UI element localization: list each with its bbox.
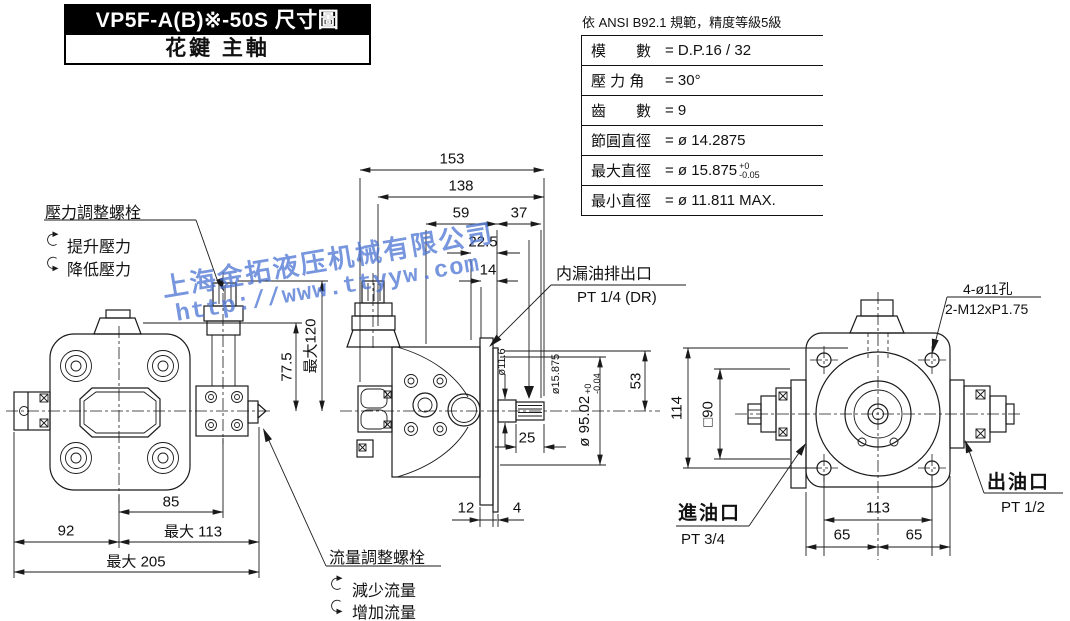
spec-row-pressure-angle: 壓 力 角 = 30°	[582, 66, 823, 96]
spec-row-module: 模 數 = D.P.16 / 32	[582, 36, 823, 66]
dim-25: 25	[519, 430, 536, 447]
clockwise-arrow-icon	[328, 575, 346, 593]
dim-12: 12	[458, 500, 475, 517]
increase-flow-label: 增加流量	[352, 599, 416, 621]
outlet-port-size: PT 1/2	[1001, 499, 1045, 516]
dim-153: 153	[439, 151, 464, 168]
inlet-port-label: 進油口	[678, 498, 741, 525]
counterclockwise-arrow-icon	[328, 597, 346, 615]
counterclockwise-arrow-icon	[44, 254, 62, 272]
pressure-adjust-label: 壓力調整螺栓	[45, 199, 141, 223]
dim-14: 14	[480, 262, 497, 279]
dim-dia11-6: ø11.6	[496, 348, 508, 375]
dim-sq90: □90	[700, 401, 717, 427]
pump-top-view	[6, 272, 272, 502]
spec-row-pitch-dia: 節圓直徑 = ø 14.2875	[582, 126, 823, 156]
spec-rows: 模 數 = D.P.16 / 32 壓 力 角 = 30° 齒 數 = 9 節圓…	[581, 35, 823, 216]
dim-max120: 最大120	[300, 318, 321, 373]
dim-max113: 最大 113	[164, 521, 222, 542]
flow-adjust-label: 流量調整螺栓	[329, 544, 425, 568]
dim-65-left: 65	[834, 527, 851, 544]
drain-port-label: 内漏油排出口	[556, 260, 652, 284]
dim-92: 92	[58, 523, 75, 540]
dim-dia95-02: ø 95.02+0-0.04	[576, 373, 602, 446]
outlet-port-label: 出油口	[987, 467, 1050, 494]
dim-dia15-875: ø15.875	[550, 354, 562, 394]
dim-138: 138	[448, 178, 473, 195]
dim-22-5: 22.5	[468, 234, 497, 251]
dim-37: 37	[511, 205, 528, 222]
major-dia-tolerance: +0 -0.05	[739, 162, 760, 180]
dim-113: 113	[866, 500, 890, 517]
spec-row-teeth: 齒 數 = 9	[582, 96, 823, 126]
title-block: VP5F-A(B)※-50S 尺寸圖 花鍵 主軸	[64, 4, 371, 65]
spline-spec-table: 依 ANSI B92.1 規範，精度等級5級 模 數 = D.P.16 / 32…	[581, 12, 823, 216]
spec-note: 依 ANSI B92.1 規範，精度等級5級	[581, 12, 823, 31]
dim-77-5: 77.5	[279, 352, 296, 381]
dim-114: 114	[669, 396, 686, 420]
front-view-dimensions	[143, 170, 651, 527]
dim-53: 53	[628, 373, 645, 390]
lower-pressure-label: 降低壓力	[67, 256, 131, 280]
dimension-drawing-page: VP5F-A(B)※-50S 尺寸圖 花鍵 主軸 依 ANSI B92.1 規範…	[0, 0, 1070, 621]
dim-85: 85	[163, 494, 180, 511]
mount-holes-label: 4-ø11孔	[963, 279, 1013, 299]
spec-row-major-dia: 最大直徑 = ø 15.875 +0 -0.05	[582, 156, 823, 186]
model-title: VP5F-A(B)※-50S 尺寸圖	[66, 6, 369, 35]
dia95-tolerance: +0-0.04	[584, 373, 602, 394]
dim-max205: 最大 205	[106, 551, 165, 572]
shaft-type-title: 花鍵 主軸	[66, 35, 369, 63]
mount-thread-label: 2-M12xP1.75	[945, 301, 1028, 317]
drain-port-size: PT 1/4 (DR)	[577, 289, 657, 306]
dim-4: 4	[513, 500, 521, 517]
pump-front-view	[340, 273, 660, 512]
inlet-port-size: PT 3/4	[681, 531, 725, 548]
spec-row-minor-dia: 最小直徑 = ø 11.811 MAX.	[582, 186, 823, 216]
dim-65-right: 65	[906, 527, 923, 544]
clockwise-arrow-icon	[44, 231, 62, 249]
dim-59: 59	[453, 205, 470, 222]
decrease-flow-label: 減少流量	[352, 577, 416, 601]
raise-pressure-label: 提升壓力	[67, 233, 131, 257]
